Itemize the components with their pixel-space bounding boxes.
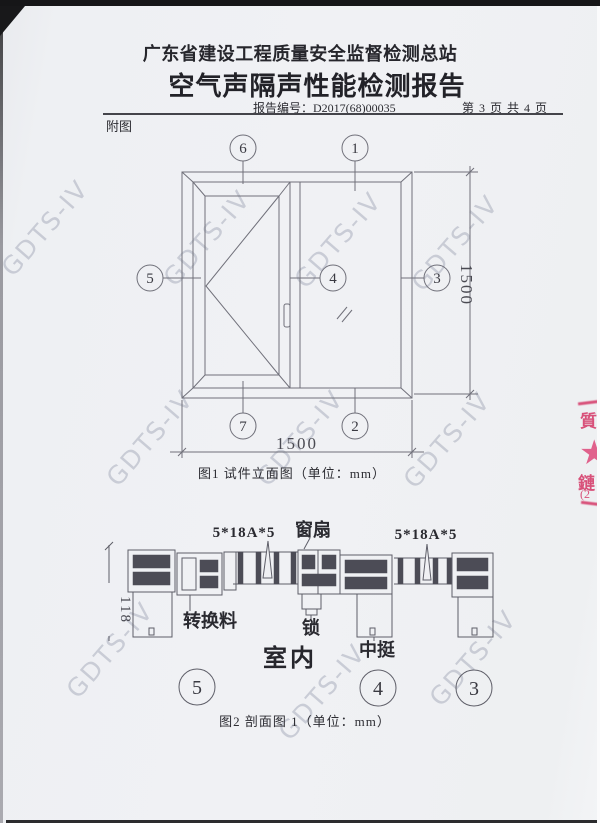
callout-4-number: 4 <box>373 678 383 700</box>
window-handle <box>284 304 290 327</box>
label-sash: 窗扇 <box>295 519 331 540</box>
callout-2-number: 2 <box>351 419 359 435</box>
profile-mullion <box>340 555 392 641</box>
callout-1-number: 1 <box>351 141 359 157</box>
profile-transition <box>177 553 222 611</box>
dim-width-1500: 1500 <box>276 434 318 453</box>
callout-5-number: 5 <box>192 677 202 699</box>
dim-height-1500: 1500 <box>457 264 476 306</box>
label-glass-left: 5*18A*5 <box>213 525 276 541</box>
profile-right-jamb <box>452 553 493 637</box>
profile-meeting-stile <box>298 550 340 619</box>
figure2-caption: 图2 剖面图 1（单位：mm） <box>219 714 391 729</box>
figures-canvas: 6 1 5 4 3 7 2 1500 1500 图1 试件 <box>0 0 600 823</box>
callout-3-number: 3 <box>469 678 479 700</box>
glazing-right <box>394 544 452 584</box>
label-glass-right: 5*18A*5 <box>395 527 458 543</box>
callout-6-number: 6 <box>239 141 247 157</box>
callout-7-number: 7 <box>239 419 247 435</box>
glass-mark <box>337 307 352 322</box>
glazing-left <box>233 541 298 584</box>
figure1-elevation: 6 1 5 4 3 7 2 1500 1500 图1 试件 <box>137 135 478 481</box>
figure1-dimensions: 1500 1500 <box>170 166 478 458</box>
callout-3-number: 3 <box>433 271 441 287</box>
label-indoor: 室内 <box>263 644 317 672</box>
glass-leader-arrow <box>263 541 272 578</box>
dim-depth-118: 118 <box>117 596 133 624</box>
stamp-fragment: (2 <box>580 487 590 502</box>
label-mullion: 中挺 <box>359 639 396 660</box>
glass-leader-arrow <box>423 544 431 580</box>
label-transition: 转换料 <box>183 610 237 631</box>
callout-5-number: 5 <box>146 271 154 287</box>
scan-edge-left <box>0 0 3 823</box>
stamp-character-top: 質 <box>580 407 597 432</box>
casement-sash <box>193 182 290 388</box>
window-frame <box>182 172 412 398</box>
scanned-report-page: GDTS-IV GDTS-IV GDTS-IV GDTS-IV GDTS-IV … <box>0 0 600 823</box>
callout-4-number: 4 <box>329 271 337 287</box>
lock-body <box>302 594 321 609</box>
profile-left-jamb <box>128 550 175 637</box>
scan-edge-top <box>0 0 600 6</box>
figure1-caption: 图1 试件立面图（单位：mm） <box>198 466 386 481</box>
figure2-section: 118 <box>105 519 493 729</box>
figure2-callouts: 5 4 3 <box>179 669 492 706</box>
label-lock: 锁 <box>302 617 320 638</box>
